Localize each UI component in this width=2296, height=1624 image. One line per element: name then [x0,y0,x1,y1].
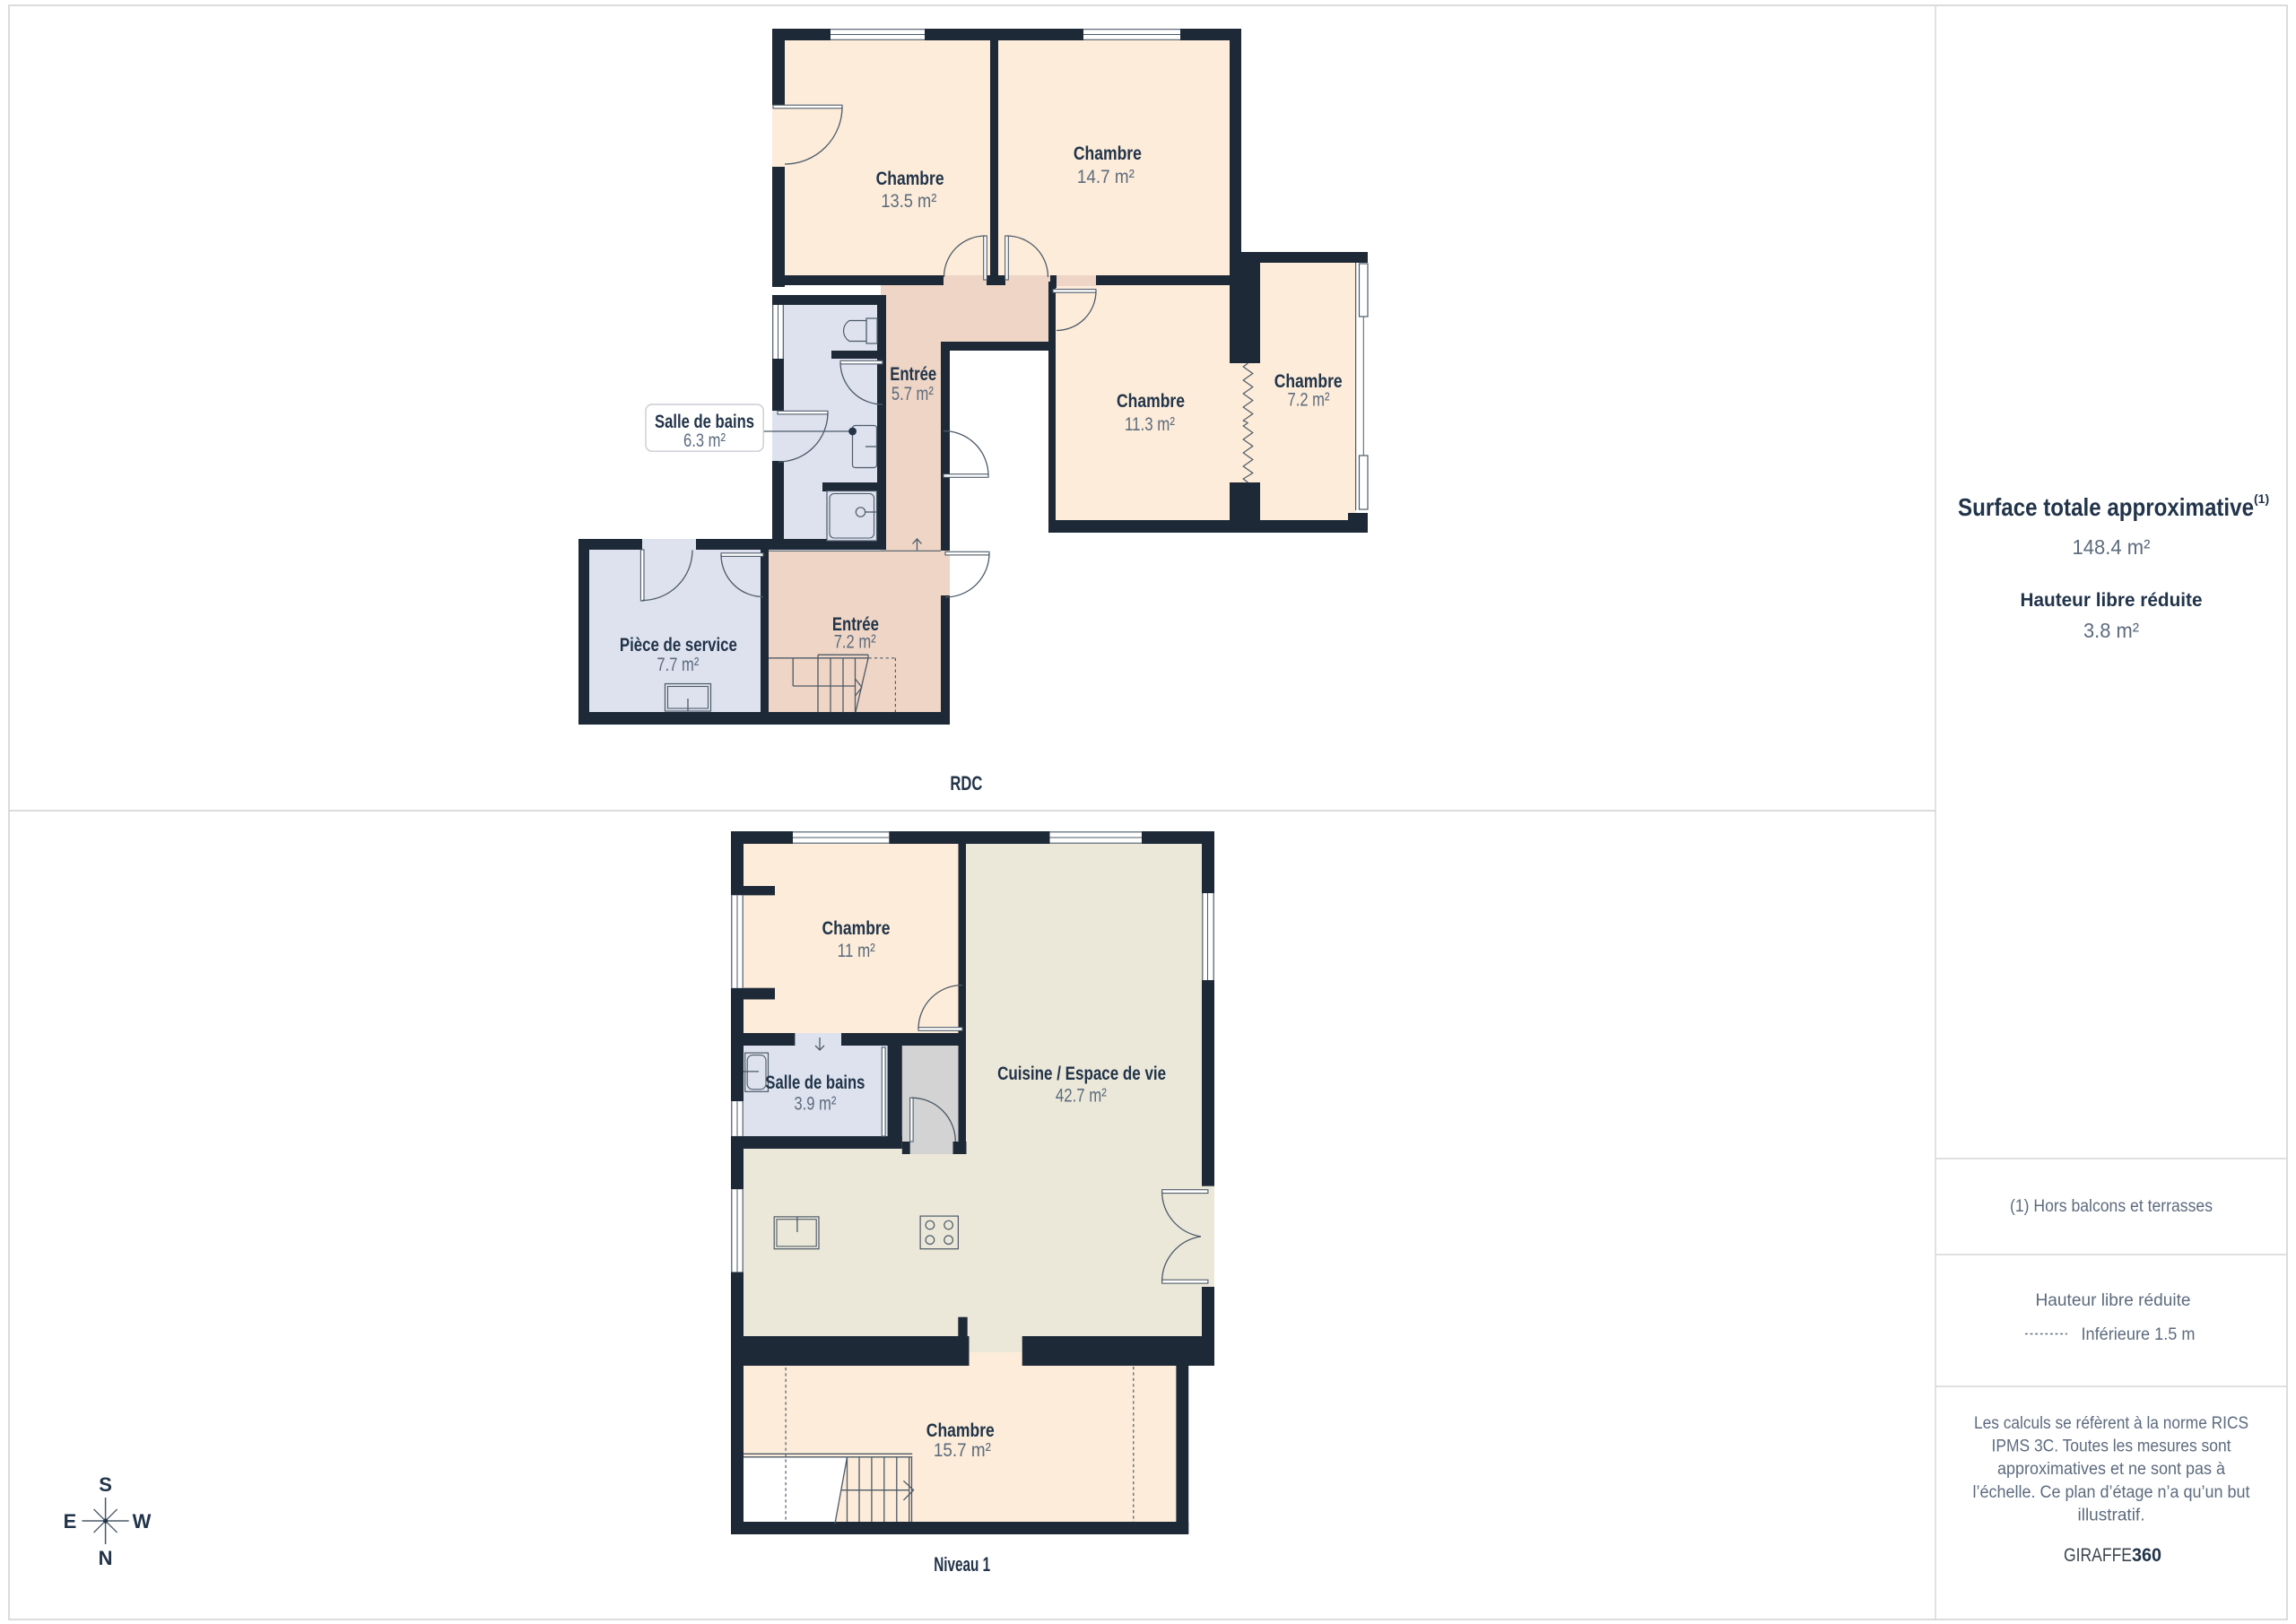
svg-text:Cuisine / Espace de vie: Cuisine / Espace de vie [997,1064,1166,1084]
svg-text:42.7 m²: 42.7 m² [1056,1086,1107,1107]
svg-text:l’échelle. Ce plan d’étage n’a: l’échelle. Ce plan d’étage n’a qu’un but [1973,1483,2251,1502]
svg-text:Hauteur libre réduite: Hauteur libre réduite [2021,590,2203,611]
svg-text:6.3 m²: 6.3 m² [683,430,726,451]
svg-text:Entrée: Entrée [890,364,936,385]
svg-text:7.2 m²: 7.2 m² [834,632,876,653]
svg-text:S: S [99,1473,112,1496]
svg-text:Inférieure 1.5 m: Inférieure 1.5 m [2082,1325,2196,1344]
svg-text:7.7 m²: 7.7 m² [657,655,699,675]
svg-text:Chambre: Chambre [1074,143,1142,164]
svg-text:14.7 m²: 14.7 m² [1077,167,1135,187]
svg-text:Niveau 1: Niveau 1 [934,1553,990,1576]
svg-text:11 m²: 11 m² [838,941,875,961]
svg-text:3.8 m²: 3.8 m² [2083,619,2139,642]
svg-text:Surface totale approximative: Surface totale approximative [1958,493,2254,521]
svg-text:Pièce de service: Pièce de service [620,635,737,656]
svg-text:Chambre: Chambre [876,169,944,189]
svg-text:3.9 m²: 3.9 m² [794,1094,836,1115]
svg-text:RDC: RDC [950,772,982,795]
svg-text:11.3 m²: 11.3 m² [1125,414,1175,435]
svg-text:(1) Hors balcons et terrasses: (1) Hors balcons et terrasses [2010,1197,2213,1216]
svg-text:GIRAFFE: GIRAFFE [2064,1545,2132,1566]
svg-text:IPMS 3C. Toutes les mesures so: IPMS 3C. Toutes les mesures sont [1992,1437,2232,1456]
svg-text:E: E [64,1510,77,1533]
svg-text:Salle de bains: Salle de bains [765,1073,865,1093]
svg-text:W: W [133,1510,152,1533]
svg-text:Salle de bains: Salle de bains [655,412,754,432]
svg-text:illustratif.: illustratif. [2078,1506,2145,1524]
svg-text:Les calculs se réfèrent à la n: Les calculs se réfèrent à la norme RICS [1974,1414,2248,1433]
svg-text:Chambre: Chambre [926,1420,995,1441]
svg-text:approximatives et ne sont pas: approximatives et ne sont pas à [1997,1460,2225,1479]
svg-text:N: N [99,1547,113,1569]
svg-text:Chambre: Chambre [1117,391,1185,412]
svg-text:Hauteur libre réduite: Hauteur libre réduite [2036,1291,2191,1310]
svg-text:5.7 m²: 5.7 m² [891,384,934,404]
svg-text:360: 360 [2132,1545,2161,1566]
svg-text:15.7 m²: 15.7 m² [934,1440,991,1461]
svg-text:Chambre: Chambre [822,918,891,939]
svg-text:148.4 m²: 148.4 m² [2073,535,2151,559]
svg-text:13.5 m²: 13.5 m² [881,191,936,212]
svg-text:(1): (1) [2254,491,2269,506]
svg-text:7.2 m²: 7.2 m² [1288,390,1330,411]
